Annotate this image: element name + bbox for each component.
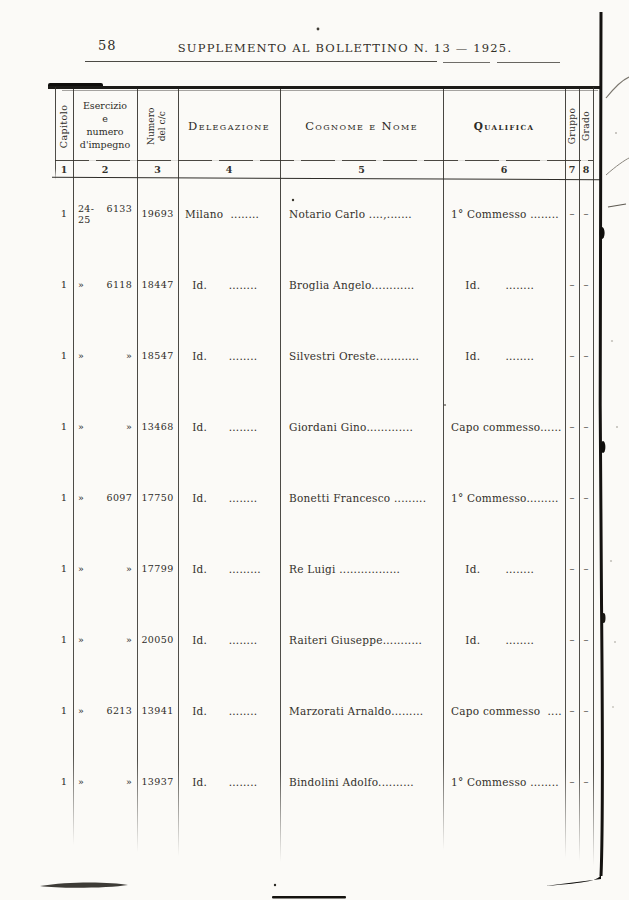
ink-speck — [274, 884, 276, 886]
cell-qualifica: 1° Commesso ........ — [443, 776, 565, 788]
column-number: 3 — [137, 161, 178, 177]
cell-numero-cc: 13941 — [137, 705, 178, 716]
cell-capitolo: 1 — [55, 279, 73, 290]
cell-qualifica: Id. ........ — [443, 279, 565, 291]
table-row: 1 » » 17799 Id. ......... Re Luigi .....… — [55, 533, 593, 604]
column-number: 2 — [73, 161, 137, 177]
cell-capitolo: 1 — [55, 634, 73, 645]
cell-cognome-e-nome: Marzorati Arnaldo......... — [280, 705, 443, 717]
table-row: 1 » » 13937 Id. ........ Bindolini Adolf… — [55, 746, 593, 817]
column-header-grado: Grado — [579, 93, 593, 159]
table-row: 1 » » 18547 Id. ........ Silvestri Orest… — [55, 320, 593, 391]
column-header-label: Grado — [581, 111, 591, 141]
cell-qualifica: Capo commesso .... — [443, 705, 565, 717]
spine-blotch — [602, 613, 606, 623]
cell-cognome-e-nome: Silvestri Oreste............ — [280, 350, 443, 362]
margin-speck — [611, 340, 613, 342]
cell-grado: – — [579, 279, 593, 290]
cell-gruppo: – — [565, 634, 579, 645]
cell-delegazione: Id. ........ — [178, 421, 280, 433]
cell-qualifica: 1° Commesso......... — [443, 492, 565, 504]
table-top-border — [48, 86, 600, 89]
cell-cognome-e-nome: Raiteri Giuseppe........... — [280, 634, 443, 646]
table-row: 1 » » 13468 Id. ........ Giordani Gino..… — [55, 391, 593, 462]
cell-esercizio: » » — [73, 350, 137, 361]
cell-esercizio-left: » — [78, 492, 84, 503]
title-underline-segment — [497, 62, 560, 63]
cell-grado: – — [579, 350, 593, 361]
cell-esercizio-right: » — [126, 634, 132, 645]
cell-cognome-e-nome: Bindolini Adolfo.......... — [280, 776, 443, 788]
ink-speck — [317, 28, 320, 31]
page-title: SUPPLEMENTO AL BOLLETTINO N. 13 — 1925. — [178, 41, 512, 55]
margin-speck — [610, 560, 612, 562]
column-header-delegazione: Delegazione — [178, 93, 280, 159]
cell-capitolo: 1 — [55, 350, 73, 361]
cell-delegazione: Id. ......... — [178, 563, 280, 575]
column-header-qualifica: Qualifica — [443, 93, 565, 159]
bottom-smudge-center — [272, 896, 346, 898]
cell-grado: – — [579, 634, 593, 645]
column-number: 8 — [579, 161, 593, 177]
cell-delegazione: Id. ........ — [178, 776, 280, 788]
column-header-cognome-e-nome: Cognome e Nome — [280, 93, 443, 159]
column-header-label: Capitolo — [59, 104, 70, 148]
cell-esercizio: » » — [73, 776, 137, 787]
margin-speck — [615, 132, 617, 134]
cell-numero-cc: 18447 — [137, 279, 178, 290]
spine-blotch — [599, 227, 604, 239]
column-number: 1 — [55, 161, 73, 177]
column-header-capitolo: Capitolo — [55, 93, 73, 159]
column-header-numero-cc: Numero del c/c — [137, 93, 178, 159]
cell-numero-cc: 13937 — [137, 776, 178, 787]
cell-cognome-e-nome: Notario Carlo ....,....... — [280, 208, 443, 220]
cell-esercizio: » » — [73, 563, 137, 574]
cell-capitolo: 1 — [55, 776, 73, 787]
cell-numero-cc: 17799 — [137, 563, 178, 574]
cell-capitolo: 1 — [55, 492, 73, 503]
column-header-label: Cognome e Nome — [305, 119, 418, 133]
cell-numero-cc: 13468 — [137, 421, 178, 432]
cell-esercizio-right: » — [126, 563, 132, 574]
cell-esercizio-right: » — [126, 776, 132, 787]
table-row: 1 » 6213 13941 Id. ........ Marzorati Ar… — [55, 675, 593, 746]
column-header-gruppo: Gruppo — [565, 93, 579, 159]
cell-capitolo: 1 — [55, 421, 73, 432]
column-header-label: Delegazione — [188, 119, 270, 133]
cell-esercizio-right: » — [126, 421, 132, 432]
table-row: 1 » 6097 17750 Id. ........ Bonetti Fran… — [55, 462, 593, 533]
cell-esercizio-left: » — [78, 421, 84, 432]
column-header-label: Numero del c/c — [146, 107, 169, 144]
cell-capitolo: 1 — [55, 563, 73, 574]
cell-cognome-e-nome: Broglia Angelo............ — [280, 279, 443, 291]
cell-numero-cc: 17750 — [137, 492, 178, 503]
column-header-esercizio: Esercizio e numero d'impegno — [73, 93, 137, 159]
cell-grado: – — [579, 492, 593, 503]
cell-esercizio-left: » — [78, 279, 84, 290]
page-number: 58 — [98, 38, 117, 53]
column-header-label: Gruppo — [567, 108, 577, 145]
scanned-page: 58 SUPPLEMENTO AL BOLLETTINO N. 13 — 192… — [0, 0, 629, 900]
column-number: 4 — [178, 161, 280, 177]
cell-numero-cc: 19693 — [137, 208, 178, 219]
cell-gruppo: – — [565, 492, 579, 503]
cell-qualifica: Id. ........ — [443, 634, 565, 646]
cell-delegazione: Id. ........ — [178, 350, 280, 362]
column-number: 7 — [565, 161, 579, 177]
spine-blotch — [601, 441, 606, 453]
cell-esercizio: » » — [73, 634, 137, 645]
cell-esercizio: » 6213 — [73, 705, 137, 716]
cell-esercizio: » 6097 — [73, 492, 137, 503]
title-underline-segment — [443, 62, 490, 63]
margin-speck — [614, 641, 616, 643]
cell-esercizio-left: » — [78, 634, 84, 645]
cell-cognome-e-nome: Bonetti Francesco ......... — [280, 492, 443, 504]
cell-capitolo: 1 — [55, 208, 73, 219]
column-number: 5 — [280, 161, 443, 177]
cell-grado: – — [579, 776, 593, 787]
cell-gruppo: – — [565, 350, 579, 361]
cell-delegazione: Id. ........ — [178, 705, 280, 717]
bottom-smudge-left — [40, 883, 128, 888]
cell-gruppo: – — [565, 208, 579, 219]
cell-gruppo: – — [565, 563, 579, 574]
table-row: 1 » » 20050 Id. ........ Raiteri Giusepp… — [55, 604, 593, 675]
cell-esercizio: » 6118 — [73, 279, 137, 290]
title-underline — [85, 61, 437, 62]
page-curl-mark — [606, 158, 629, 175]
book-spine-shadow — [600, 12, 603, 876]
cell-grado: – — [579, 421, 593, 432]
cell-numero-cc: 20050 — [137, 634, 178, 645]
page-curl-mark — [606, 77, 629, 98]
table-right-border — [593, 87, 594, 866]
cell-esercizio-right: 6097 — [107, 492, 132, 503]
cell-cognome-e-nome: Re Luigi ................. — [280, 563, 443, 575]
cell-qualifica: Id. ........ — [443, 350, 565, 362]
cell-numero-cc: 18547 — [137, 350, 178, 361]
page-bottom-edge-wedge — [545, 874, 601, 886]
cell-esercizio-left: 24-25 — [78, 203, 107, 225]
margin-speck — [612, 706, 614, 708]
column-header-label: Esercizio e numero d'impegno — [80, 100, 130, 151]
cell-gruppo: – — [565, 279, 579, 290]
cell-gruppo: – — [565, 705, 579, 716]
cell-qualifica: Id. ........ — [443, 563, 565, 575]
table-body: 1 24-25 6133 19693 Milano ........ Notar… — [55, 178, 593, 817]
cell-delegazione: Id. ........ — [178, 492, 280, 504]
cell-cognome-e-nome: Giordani Gino............. — [280, 421, 443, 433]
cell-gruppo: – — [565, 421, 579, 432]
cell-esercizio-left: » — [78, 350, 84, 361]
margin-speck — [616, 426, 618, 428]
cell-esercizio-right: 6133 — [107, 203, 132, 225]
cell-esercizio: » » — [73, 421, 137, 432]
cell-grado: – — [579, 705, 593, 716]
cell-qualifica: Capo commesso...... — [443, 421, 565, 433]
cell-esercizio-left: » — [78, 776, 84, 787]
cell-esercizio-left: » — [78, 563, 84, 574]
cell-delegazione: Milano ........ — [178, 208, 280, 220]
cell-esercizio: 24-25 6133 — [73, 203, 137, 225]
column-number: 6 — [443, 161, 565, 177]
cell-gruppo: – — [565, 776, 579, 787]
table-row: 1 24-25 6133 19693 Milano ........ Notar… — [55, 178, 593, 249]
cell-esercizio-left: » — [78, 705, 84, 716]
cell-esercizio-right: 6118 — [107, 279, 132, 290]
cell-delegazione: Id. ........ — [178, 279, 280, 291]
cell-grado: – — [579, 563, 593, 574]
table-top-border-echo — [62, 90, 598, 91]
cell-delegazione: Id. ........ — [178, 634, 280, 646]
cell-grado: – — [579, 208, 593, 219]
cell-capitolo: 1 — [55, 705, 73, 716]
margin-mark — [608, 204, 626, 207]
cell-esercizio-right: » — [126, 350, 132, 361]
cell-esercizio-right: 6213 — [107, 705, 132, 716]
cell-qualifica: 1° Commesso ........ — [443, 208, 565, 220]
column-header-label: Qualifica — [474, 120, 535, 132]
table-row: 1 » 6118 18447 Id. ........ Broglia Ange… — [55, 249, 593, 320]
